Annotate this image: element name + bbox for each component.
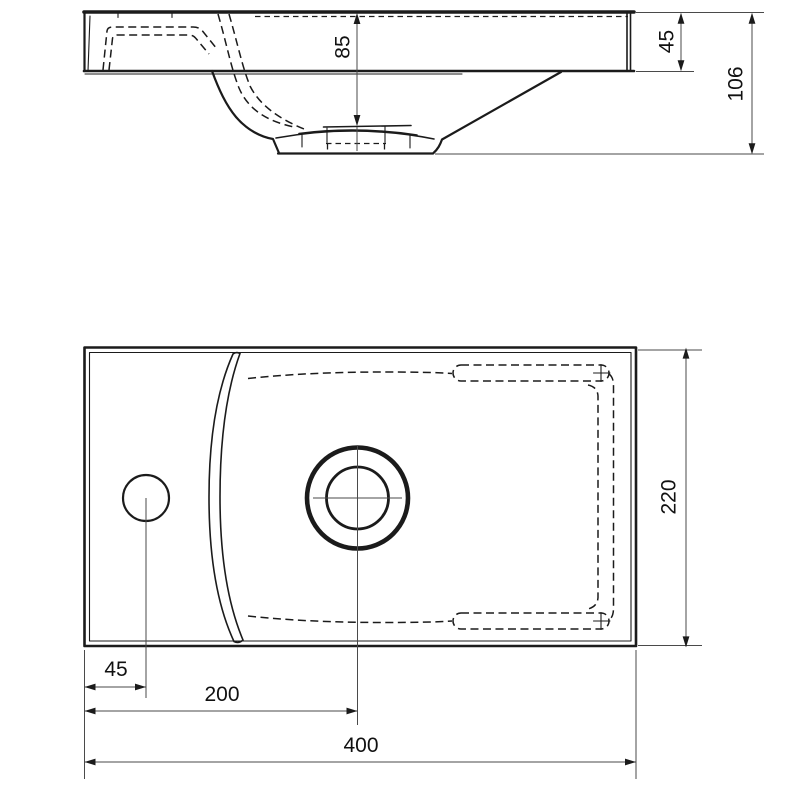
overflow-center-marks — [594, 365, 611, 630]
dim-overall-width: 400 — [85, 734, 637, 765]
plan-view: 220 45 200 400 — [85, 348, 703, 780]
drawing-svg: 85 45 106 — [0, 0, 800, 800]
deck-top-ticks — [118, 14, 172, 18]
deck-left-inner-edge — [88, 16, 90, 71]
dim-overall-depth: 220 — [638, 348, 702, 648]
side-extension-lines — [435, 13, 764, 155]
dim-400-label: 400 — [343, 734, 378, 757]
overflow-slot-top — [453, 365, 609, 381]
hidden-rim-lines — [248, 372, 452, 623]
hidden-ledge-contour — [103, 27, 217, 70]
dim-drain-offset: 200 — [85, 683, 358, 714]
overflow-slot-bottom — [453, 613, 609, 629]
dim-overall-height: 106 — [725, 13, 756, 155]
washbasin-technical-drawing: 85 45 106 — [0, 0, 800, 800]
plan-inner-rect — [90, 353, 632, 642]
drain-hole-hidden — [326, 144, 386, 154]
dim-85-label: 85 — [332, 35, 355, 58]
dim-deck-thickness: 45 — [656, 13, 685, 72]
drain-crosshair — [313, 446, 402, 725]
plan-bottom-extensions — [85, 650, 637, 779]
dim-45b-label: 45 — [104, 658, 127, 681]
plan-outer-rect — [85, 348, 637, 647]
basin-wall-crescent — [209, 353, 243, 643]
dim-45-label: 45 — [656, 30, 679, 53]
bowl-outline — [212, 71, 561, 154]
dim-200-label: 200 — [204, 683, 239, 706]
deck-right-edge — [627, 12, 631, 71]
side-view: 85 45 106 — [84, 12, 764, 154]
dim-tap-offset: 45 — [85, 658, 147, 690]
overflow-channel-sides — [588, 374, 614, 620]
dim-220-label: 220 — [658, 479, 681, 514]
dim-106-label: 106 — [725, 66, 748, 101]
